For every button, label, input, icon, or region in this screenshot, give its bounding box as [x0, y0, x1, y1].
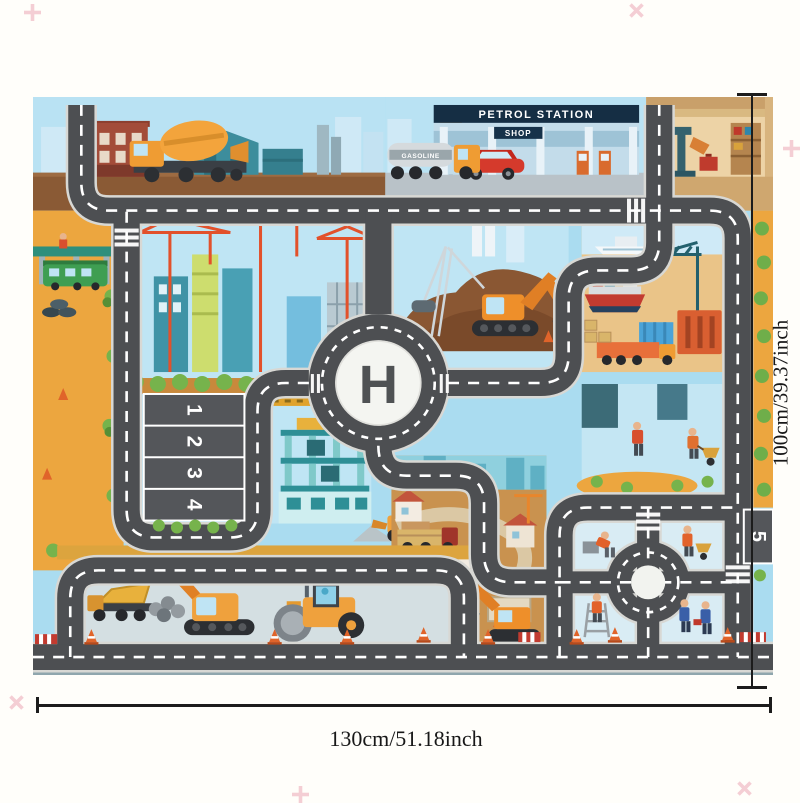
- height-dimension-line: [751, 95, 753, 689]
- width-dimension-line: [38, 704, 771, 707]
- height-dimension-cap-bottom: [737, 686, 767, 689]
- striped-barrier: [518, 632, 540, 642]
- parking-bays: 1 2 3 4: [144, 394, 245, 534]
- petrol-station: PETROL STATION SHOP GASOLINE: [385, 97, 646, 211]
- helipad-roundabout: H: [336, 341, 421, 425]
- left-bridge-scene: [33, 211, 124, 571]
- pipe-load: [412, 300, 436, 312]
- gasoline-tanker-truck: GASOLINE: [387, 143, 480, 179]
- width-dimension-label: 130cm/51.18inch: [329, 726, 482, 752]
- container-truck: [597, 342, 676, 365]
- shop-sign: SHOP: [505, 129, 532, 138]
- sparkle-decoration: [736, 780, 753, 797]
- crosswalk: [627, 199, 645, 223]
- parking-spot-2: 2: [183, 436, 206, 448]
- container-stack: [677, 310, 721, 354]
- cement-silo: [485, 223, 495, 257]
- width-dimension-cap-right: [769, 697, 772, 713]
- green-train: [43, 260, 107, 290]
- mini-roundabout-center: [631, 565, 665, 599]
- sparkle-decoration: [292, 786, 309, 803]
- mat-illustration: PETROL STATION SHOP GASOLINE: [33, 97, 773, 675]
- garage-shelf: [731, 123, 761, 175]
- bridge-worker: [59, 233, 67, 248]
- petrol-station-sign: PETROL STATION: [479, 109, 595, 121]
- crosswalk: [636, 513, 660, 531]
- sparkle-decoration: [8, 694, 25, 711]
- bridge-girder: [33, 246, 120, 256]
- utility-zone: [577, 384, 725, 500]
- factory-chimney: [317, 125, 329, 175]
- width-dimension-cap-left: [36, 697, 39, 713]
- parking-spot-3: 3: [183, 467, 206, 479]
- sparkle-decoration: [783, 140, 800, 157]
- height-dimension-cap-top: [737, 93, 767, 96]
- crosswalk: [726, 565, 750, 583]
- sparkle-decoration: [628, 2, 645, 19]
- sparkle-decoration: [24, 4, 41, 21]
- crosswalk: [115, 229, 139, 247]
- height-dimension-label: 100cm/39.37inch: [769, 320, 794, 466]
- parking-spot-4: 4: [183, 499, 206, 511]
- factory-chimney: [331, 137, 341, 175]
- helipad-label: H: [359, 355, 398, 415]
- tanker-label: GASOLINE: [402, 153, 440, 160]
- parking-spot-1: 1: [183, 404, 206, 416]
- cement-silo: [472, 223, 482, 257]
- play-mat-photo: PETROL STATION SHOP GASOLINE: [33, 97, 773, 675]
- striped-barrier: [35, 634, 57, 644]
